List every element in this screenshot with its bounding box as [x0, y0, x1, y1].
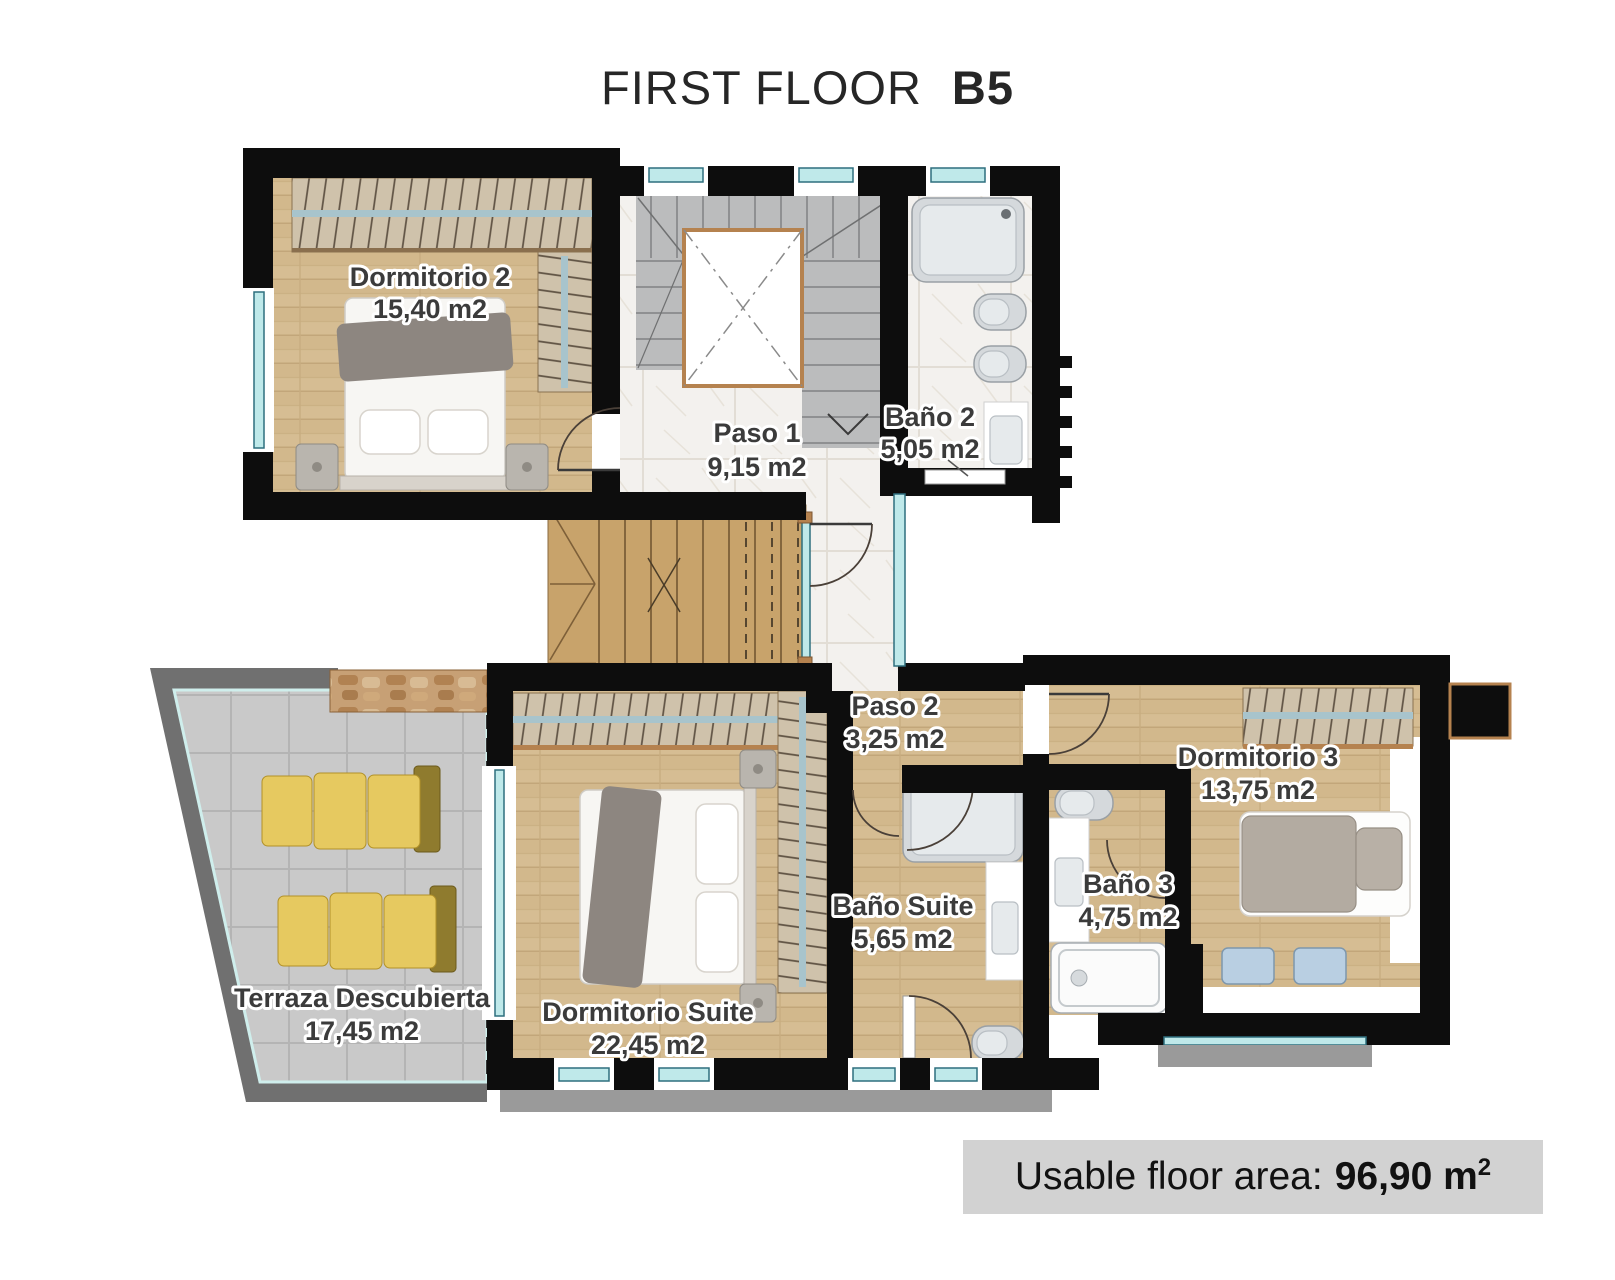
wall-segment [1060, 386, 1072, 398]
terraza-label-area: 17,45 m2 [305, 1016, 419, 1046]
wall-segment [1023, 655, 1450, 685]
wood-staircase [548, 505, 812, 668]
bano2-label-area: 5,05 m2 [880, 434, 979, 464]
shower-tray [912, 198, 1024, 282]
wall-segment [592, 470, 620, 494]
toilet [974, 294, 1026, 330]
sink [984, 402, 1028, 476]
wall-segment [243, 148, 273, 292]
wall-segment [1420, 655, 1450, 1045]
terraza-label-name: Terraza Descubierta [234, 983, 491, 1013]
bano-suite-label-area: 5,65 m2 [853, 924, 952, 954]
wall-segment [243, 492, 806, 520]
window [554, 1058, 614, 1090]
bano3-label-name: Baño 3 [1083, 869, 1173, 899]
usable-area-label: Usable floor area: [1015, 1155, 1323, 1199]
wall-segment [592, 176, 620, 414]
closet-dormitorio2-top [292, 178, 592, 252]
bidet [974, 346, 1026, 382]
sink [986, 862, 1023, 980]
wall-segment [487, 1018, 513, 1062]
window [236, 288, 274, 452]
dormitorio-suite-label-name: Dormitorio Suite [542, 997, 754, 1027]
floorplan-page: FIRST FLOORB5 [0, 0, 1615, 1280]
dormitorio2-label-area: 15,40 m2 [373, 294, 487, 324]
bano-suite-label-name: Baño Suite [832, 891, 973, 921]
stairwell-void [684, 230, 802, 386]
paso2-label-name: Paso 2 [851, 691, 938, 721]
bano3-label-area: 4,75 m2 [1078, 902, 1177, 932]
nightstand [506, 444, 548, 490]
door-bano2 [925, 470, 1005, 484]
stool-blue [1294, 948, 1346, 984]
usable-area-sup: 2 [1478, 1154, 1491, 1181]
dormitorio-suite-label-area: 22,45 m2 [591, 1030, 705, 1060]
floor-plan: Dormitorio 2 15,40 m2 Paso 1 9,15 m2 Bañ… [0, 0, 1615, 1280]
wall-segment [1060, 356, 1072, 368]
nightstand [296, 444, 338, 490]
wall-segment [1060, 446, 1072, 458]
glass-wall [894, 494, 905, 666]
wall-segment [1032, 166, 1060, 523]
stone-wall-strip [330, 670, 487, 712]
wall-segment [902, 765, 1023, 793]
closet-dormitorio-suite-top [513, 693, 778, 750]
wardrobe-dormitorio-suite-side [778, 691, 827, 993]
wall-chimney [1450, 684, 1510, 738]
window [654, 1058, 714, 1090]
usable-area-bar: Usable floor area: 96,90 m2 [963, 1140, 1543, 1214]
stair-screen-glass [802, 518, 810, 664]
toilet [972, 1026, 1024, 1060]
window [482, 766, 516, 1020]
corridor-floor [806, 492, 898, 663]
window [930, 1058, 982, 1090]
paso1-label-name: Paso 1 [713, 418, 800, 448]
window [794, 156, 858, 196]
sun-lounger [278, 886, 456, 972]
wall-segment [1049, 764, 1167, 790]
wall-segment [1060, 416, 1072, 428]
bathtub [1051, 943, 1167, 1013]
wall-segment [243, 148, 620, 178]
wall-segment [1165, 944, 1203, 1016]
wall-segment [1060, 476, 1072, 488]
wall-segment [487, 663, 513, 768]
closet-dormitorio2-side [538, 252, 592, 392]
dormitorio2-label-name: Dormitorio 2 [350, 262, 511, 292]
usable-area-value: 96,90 m2 [1335, 1155, 1491, 1199]
sun-lounger [262, 766, 440, 852]
dormitorio3-label-name: Dormitorio 3 [1178, 742, 1339, 772]
exterior-ledge [500, 1090, 1052, 1112]
dormitorio3-label-area: 13,75 m2 [1201, 775, 1315, 805]
window [848, 1058, 900, 1090]
bano2-label-name: Baño 2 [885, 402, 975, 432]
paso1-label-area: 9,15 m2 [707, 452, 806, 482]
bed-dormitorio3 [1240, 812, 1410, 916]
stool-blue [1222, 948, 1274, 984]
window-band [1164, 1037, 1366, 1045]
exterior-ledge [1158, 1045, 1372, 1067]
window [926, 156, 990, 196]
paso2-label-area: 3,25 m2 [845, 724, 944, 754]
wall-segment [898, 663, 1025, 691]
wall-segment [1023, 754, 1049, 1100]
closet-dormitorio3-top [1243, 688, 1413, 749]
nightstand [740, 750, 776, 788]
window [644, 156, 708, 196]
bed-dormitorio-suite [580, 750, 776, 1022]
toilet [1055, 786, 1113, 820]
wall-segment [487, 663, 809, 691]
